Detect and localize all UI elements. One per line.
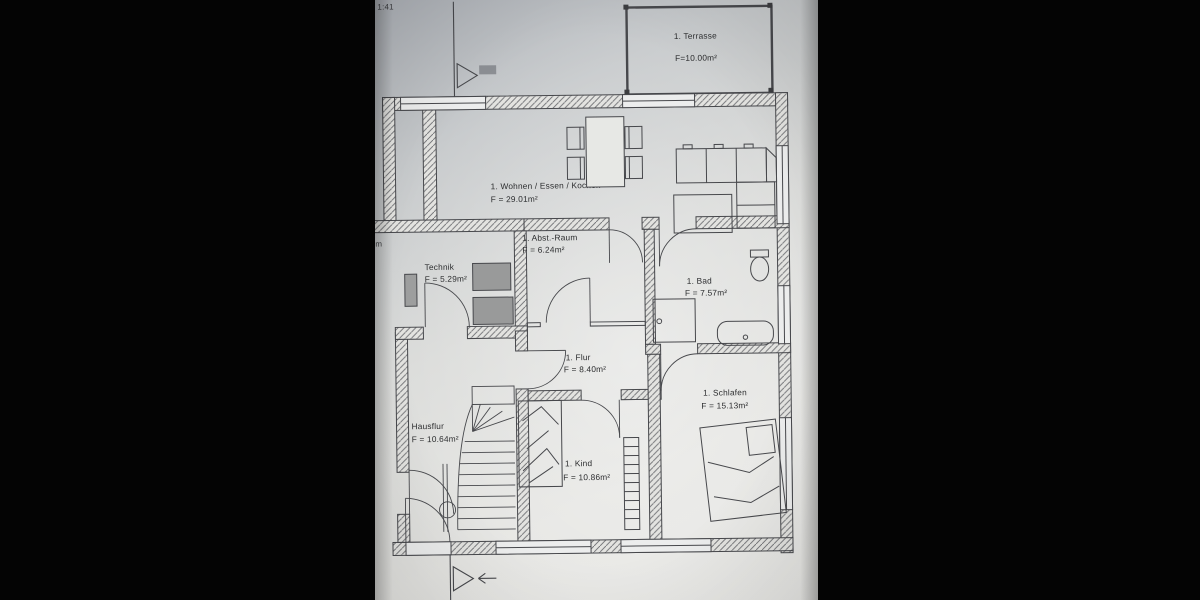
corner-tick	[767, 3, 772, 8]
window	[401, 96, 486, 110]
section-marker-icon	[453, 567, 473, 591]
wall	[646, 344, 661, 354]
room-schlafen: 1. Schlafen F = 15.13m²	[699, 387, 786, 522]
room-area: F = 15.13m²	[701, 400, 748, 411]
door-arc	[581, 400, 619, 438]
window	[778, 286, 791, 344]
room-terrasse: 1. Terrasse F=10.00m²	[623, 3, 773, 95]
entrance-door-opening	[406, 542, 451, 556]
shower	[653, 299, 696, 343]
section-flag-icon	[479, 65, 496, 74]
wall	[515, 331, 527, 351]
cutoff-text-fragment: 1:41	[377, 2, 394, 11]
wall	[383, 97, 397, 227]
appliance-washer	[473, 263, 511, 290]
corner-tick	[623, 5, 628, 10]
door-arc	[661, 354, 698, 391]
wall	[423, 110, 437, 220]
room-technik: Technik F = 5.29m²	[405, 261, 514, 325]
partition-wall	[527, 323, 540, 327]
wall	[395, 332, 409, 472]
room-label: Technik	[425, 262, 455, 272]
double-bed	[700, 419, 786, 521]
room-kind: 1. Kind F = 10.86m²	[518, 399, 640, 530]
radiator	[624, 437, 640, 529]
room-label: 1. Bad	[687, 276, 712, 286]
terrace-door	[622, 94, 694, 108]
door-arc	[609, 229, 642, 262]
room-area: F=10.00m²	[675, 52, 717, 63]
wall	[395, 327, 423, 339]
room-area: F = 29.01m²	[491, 194, 538, 205]
appliance-dryer	[473, 297, 513, 324]
room-label: 1. Schlafen	[703, 387, 747, 398]
room-area: F = 8.40m²	[564, 364, 607, 375]
room-abstraum: 1. Abst.-Raum F = 6.24m²	[522, 232, 577, 255]
section-marker-icon	[457, 63, 477, 87]
dining-chair	[567, 157, 584, 179]
door-arc	[546, 278, 591, 323]
staircase	[438, 386, 516, 532]
arrow-left-icon	[478, 573, 496, 583]
right-black-bar	[818, 0, 1200, 600]
dining-chair	[625, 156, 642, 178]
floor-plan-paper: 1. Terrasse F=10.00m²	[375, 0, 818, 600]
room-label: 1. Kind	[565, 458, 593, 468]
wall	[398, 514, 410, 542]
door-arc	[659, 229, 696, 266]
wall	[375, 219, 524, 233]
wall	[698, 343, 791, 354]
toilet	[750, 250, 768, 281]
window	[621, 539, 711, 553]
window	[776, 146, 789, 224]
room-area: F = 6.24m²	[522, 244, 565, 255]
wall	[524, 218, 609, 231]
vanity	[717, 321, 773, 346]
dining-chair	[567, 127, 584, 149]
wall	[393, 538, 793, 556]
room-area: F = 5.29m²	[425, 274, 468, 285]
room-area: F = 10.64m²	[412, 434, 459, 445]
room-area: F = 7.57m²	[685, 287, 728, 298]
cutoff-text-fragment: m	[375, 240, 382, 249]
corner-tick	[768, 88, 773, 93]
wall	[642, 217, 659, 229]
left-black-bar	[0, 0, 375, 600]
room-label: 1. Terrasse	[674, 30, 717, 41]
dining-table	[567, 116, 643, 187]
door-arc	[425, 283, 470, 328]
room-label: Hausflur	[411, 421, 444, 431]
room-label: 1. Wohnen / Essen / Kochen	[491, 180, 602, 191]
section-marker-top	[453, 1, 496, 97]
dining-chair	[625, 126, 642, 148]
photo-of-floor-plan: 1. Terrasse F=10.00m²	[0, 0, 1200, 600]
door-arc	[528, 350, 566, 388]
duct	[405, 274, 417, 306]
room-flur: 1. Flur F = 8.40m²	[564, 352, 607, 375]
room-bad: 1. Bad F = 7.57m²	[652, 250, 773, 346]
section-marker-bottom	[450, 554, 497, 600]
room-area: F = 10.86m²	[563, 472, 610, 483]
wall	[528, 390, 581, 401]
room-hausflur: Hausflur F = 10.64m²	[411, 386, 516, 532]
room-label: 1. Flur	[566, 352, 591, 362]
wall	[648, 354, 662, 539]
window	[496, 540, 591, 554]
window	[779, 418, 792, 510]
room-label: 1. Abst.-Raum	[522, 232, 577, 243]
corner-tick	[624, 90, 629, 95]
floor-plan-drawing: 1. Terrasse F=10.00m²	[375, 0, 818, 600]
partition-wall	[590, 321, 645, 326]
terrasse-wall	[626, 6, 772, 95]
